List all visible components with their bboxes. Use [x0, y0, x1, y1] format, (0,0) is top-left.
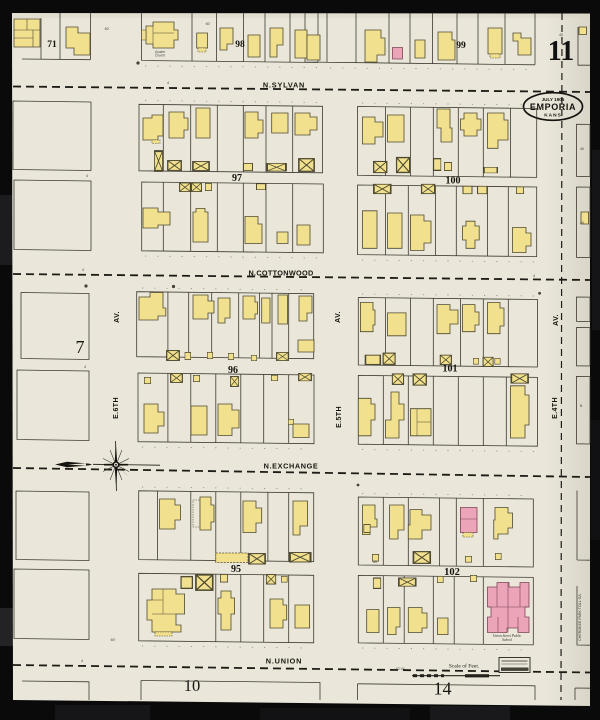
svg-text:71: 71 — [47, 40, 57, 50]
svg-text:N.SYLVAN: N.SYLVAN — [263, 81, 305, 90]
svg-text:60': 60' — [206, 22, 211, 26]
svg-text:7: 7 — [76, 337, 85, 357]
svg-text:E.6TH: E.6TH — [113, 397, 120, 419]
svg-text:4: 4 — [81, 659, 83, 663]
svg-text:101: 101 — [443, 364, 458, 375]
svg-text:102: 102 — [444, 567, 460, 578]
svg-text:14: 14 — [434, 679, 452, 699]
svg-text:100: 100 — [446, 176, 461, 187]
svg-text:School: School — [502, 638, 512, 642]
svg-text:60': 60' — [111, 638, 116, 642]
svg-text:AV.: AV. — [335, 311, 342, 323]
svg-text:40: 40 — [580, 221, 584, 225]
svg-text:99: 99 — [456, 41, 466, 51]
svg-text:97: 97 — [232, 173, 242, 184]
svg-text:4: 4 — [533, 274, 535, 278]
svg-text:AV.: AV. — [553, 314, 560, 326]
svg-text:4: 4 — [82, 268, 84, 272]
svg-text:95: 95 — [231, 564, 241, 575]
svg-text:4: 4 — [84, 365, 86, 369]
svg-text:40: 40 — [580, 147, 584, 151]
svg-text:98: 98 — [235, 40, 245, 50]
svg-text:Scale of Feet.: Scale of Feet. — [449, 663, 480, 670]
svg-text:Church: Church — [155, 54, 166, 58]
svg-text:4: 4 — [167, 81, 169, 85]
svg-text:N.COTTONWOOD: N.COTTONWOOD — [248, 269, 313, 278]
svg-text:AV.: AV. — [114, 311, 121, 323]
svg-text:N: N — [580, 404, 583, 408]
svg-text:60': 60' — [105, 27, 110, 31]
svg-text:E.4TH: E.4TH — [552, 397, 559, 419]
svg-text:10: 10 — [184, 676, 201, 695]
svg-text:11: 11 — [548, 36, 574, 67]
svg-text:CHEROKEE PARK TOLL GA.: CHEROKEE PARK TOLL GA. — [578, 593, 582, 641]
svg-text:62·04: 62·04 — [396, 667, 405, 671]
svg-text:4: 4 — [86, 174, 88, 178]
svg-text:96: 96 — [228, 365, 238, 376]
svg-text:KANS: KANS — [544, 113, 562, 119]
svg-text:60: 60 — [373, 560, 377, 564]
svg-text:N.UNION: N.UNION — [266, 657, 302, 666]
svg-text:E.5TH: E.5TH — [336, 406, 343, 428]
svg-text:N.EXCHANGE: N.EXCHANGE — [264, 462, 319, 471]
